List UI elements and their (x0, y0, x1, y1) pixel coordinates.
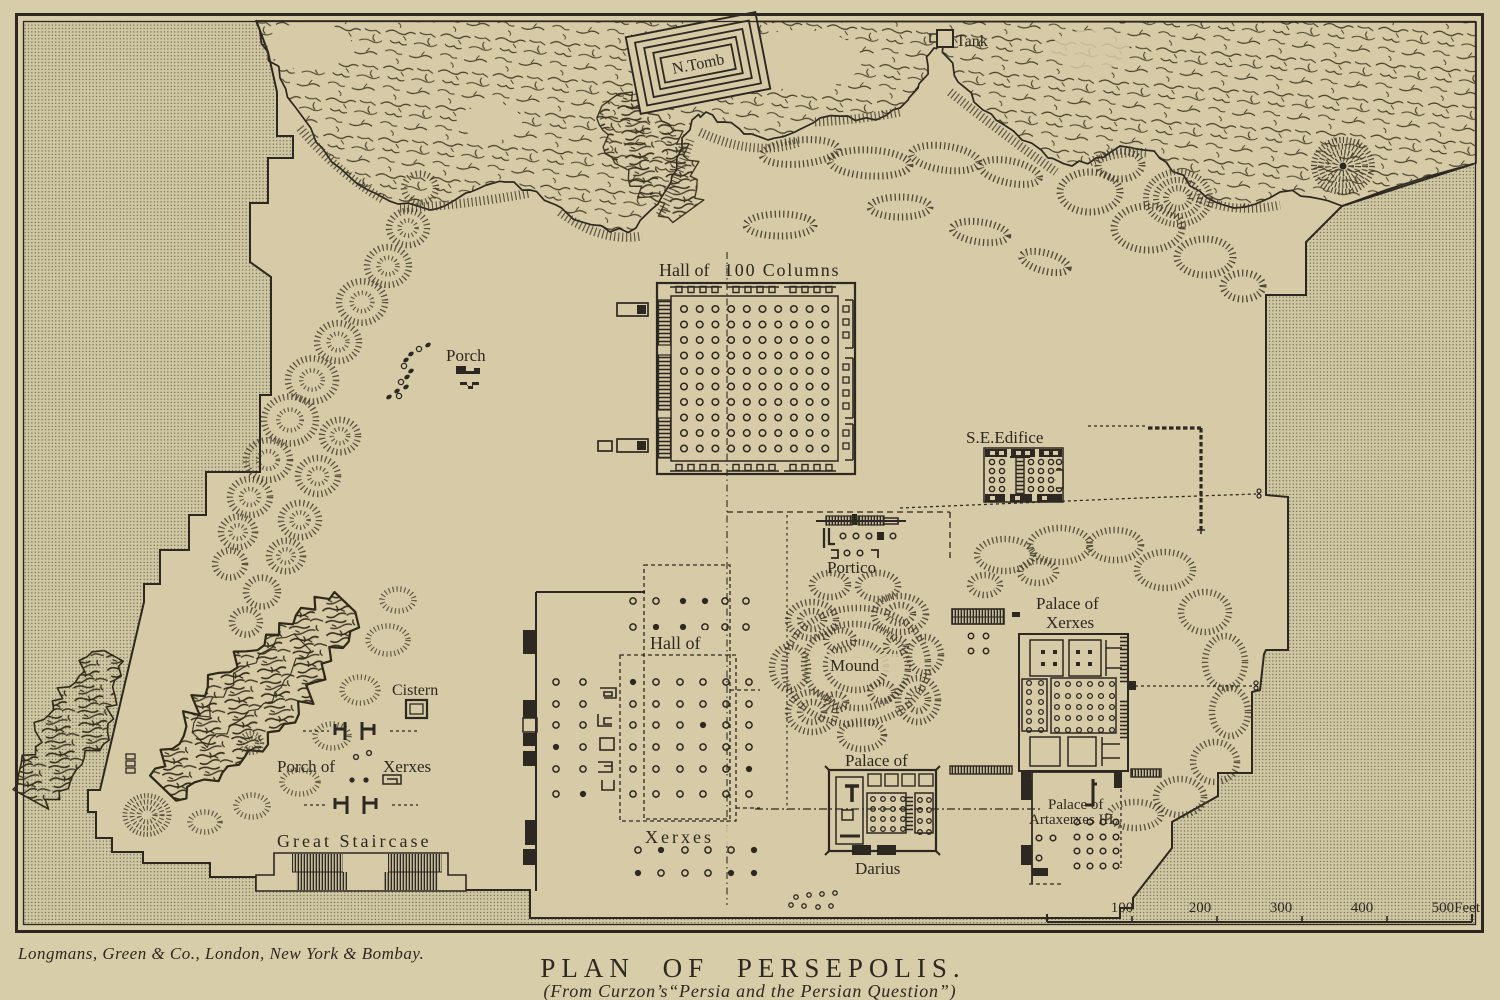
svg-text:Darius: Darius (855, 859, 900, 878)
svg-text:Porch of: Porch of (277, 757, 335, 776)
svg-text:400: 400 (1351, 900, 1374, 916)
svg-text:Palace of: Palace of (1036, 594, 1099, 613)
svg-text:Portico: Portico (827, 558, 876, 577)
svg-text:Hall of: Hall of (650, 633, 700, 653)
svg-text:Great Staircase: Great Staircase (277, 831, 431, 851)
svg-text:Xerxes: Xerxes (645, 827, 714, 847)
svg-text:300: 300 (1270, 900, 1293, 916)
svg-text:100 Columns: 100 Columns (724, 260, 840, 280)
svg-text:PLAN OF PERSEPOLIS.: PLAN OF PERSEPOLIS. (540, 953, 965, 983)
svg-text:Xerxes: Xerxes (1046, 613, 1094, 632)
svg-text:Palace of: Palace of (845, 751, 908, 770)
svg-text:Porch: Porch (446, 346, 486, 365)
svg-text:200: 200 (1189, 900, 1212, 916)
svg-text:100: 100 (1111, 900, 1134, 916)
svg-text:Tank: Tank (956, 33, 988, 50)
svg-text:Artaxerxes III: Artaxerxes III (1029, 812, 1114, 828)
svg-text:500Feet: 500Feet (1432, 900, 1481, 916)
svg-text:Longmans, Green & Co., London,: Longmans, Green & Co., London, New York … (17, 944, 424, 963)
svg-text:Palace of: Palace of (1048, 797, 1103, 813)
svg-text:Xerxes: Xerxes (383, 757, 431, 776)
svg-text:Hall of: Hall of (659, 260, 709, 280)
svg-text:S.E.Edifice: S.E.Edifice (966, 428, 1043, 447)
svg-text:Mound: Mound (830, 656, 880, 675)
svg-text:Cistern: Cistern (392, 682, 438, 699)
svg-text:(From Curzon’s“Persia and the: (From Curzon’s“Persia and the Persian Qu… (544, 981, 957, 1000)
